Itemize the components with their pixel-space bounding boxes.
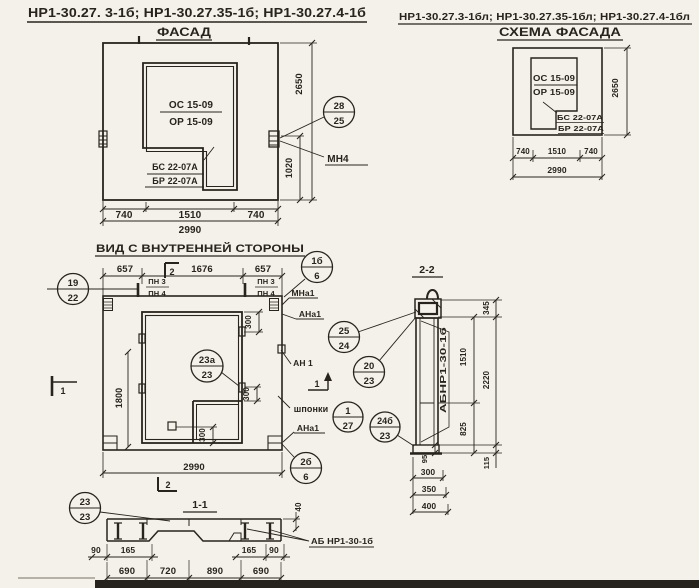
inner-dim-300-mid: 300 — [242, 387, 251, 401]
facade-dim-2990: 2990 — [179, 225, 202, 236]
series-left-title: НР1-30.27. 3-1б; НР1-30.27.35-1б; НР1-30… — [28, 6, 366, 20]
facade-block-mark-bottom: БР 22-07А — [152, 176, 198, 186]
dim-40: 40 — [294, 502, 303, 512]
series-right-title: НР1-30.27.3-1бл; НР1-30.27.35-1бл; НР1-3… — [399, 11, 690, 23]
schema-dim-740-left: 740 — [516, 147, 530, 156]
callout-1b-6-top: 1б — [311, 256, 322, 267]
inner-dim-1676: 1676 — [191, 264, 213, 275]
dim-350-base: 350 — [422, 484, 437, 494]
section-marker-1-left-label: 1 — [60, 386, 65, 396]
inner-view: ВИД С ВНУТРЕННЕЙ СТОРОНЫ 657 1676 657 2 … — [47, 242, 332, 491]
ana1-top-label: АНа1 — [299, 309, 321, 319]
lifting-loop — [427, 290, 438, 299]
plan-section-outline — [107, 519, 281, 541]
dim-400-base: 400 — [422, 501, 437, 511]
dim-345: 345 — [482, 301, 491, 315]
schema-block-mark-top: БС 22-07А — [557, 113, 604, 122]
section-marker-2-bottom-label: 2 — [165, 480, 170, 490]
facade-view: ФАСАД ОС 15-09 ОР 15-09 БС 22-07А БР 22-… — [99, 25, 368, 236]
callout-20-23-bottom: 23 — [364, 376, 375, 387]
technical-drawing: НР1-30.27. 3-1б; НР1-30.27.35-1б; НР1-30… — [0, 0, 699, 588]
top-connector-core — [419, 303, 437, 314]
schema-opening-mark-top: ОС 15-09 — [533, 74, 576, 83]
section-1-1-title: 1-1 — [192, 499, 208, 511]
inner-dim-657-right: 657 — [255, 264, 271, 275]
section-2-2: 2-2 АБНР1-30-1б 345 1510 2220 825 95 115… — [358, 264, 502, 515]
facade-dim-2650: 2650 — [294, 73, 305, 95]
inner-opening-inner-line — [146, 316, 239, 440]
callout-25-24-bottom: 24 — [339, 341, 350, 352]
inner-dim-300-bottom: 300 — [198, 428, 207, 442]
dim-690-right: 690 — [253, 566, 269, 577]
callout-20-23: 20 23 — [354, 357, 385, 388]
section-marker-1-right-label: 1 — [314, 379, 319, 389]
section-marker-1-left: 1 — [52, 376, 77, 396]
dim-90-left: 90 — [91, 545, 101, 555]
dim-720: 720 — [160, 566, 176, 577]
facade-dim-1510: 1510 — [179, 210, 202, 221]
facade-opening-mark-top: ОС 15-09 — [169, 100, 213, 111]
dim-95: 95 — [420, 455, 429, 464]
facade-opening-mark-bottom: ОР 15-09 — [169, 117, 213, 128]
section-marker-2-bottom: 2 — [158, 477, 177, 491]
callout-2b-6-bottom: 6 — [303, 472, 308, 483]
inner-dim-300-top: 300 — [244, 315, 253, 329]
an1-label: АН 1 — [293, 358, 313, 368]
facade-dim-740-left: 740 — [116, 210, 133, 221]
schema-opening-mark-bottom: ОР 15-09 — [533, 88, 576, 97]
callout-25-24-top: 25 — [339, 326, 350, 337]
schema-dim-1510: 1510 — [548, 147, 567, 156]
section-marker-2-top-label: 2 — [169, 267, 174, 277]
dim-90-right: 90 — [269, 545, 279, 555]
scan-edge-bar — [95, 580, 699, 588]
inner-annotation-labels: МНа1 АНа1 АН 1 шпонки АНа1 — [47, 279, 328, 457]
callout-23-23-top: 23 — [80, 497, 91, 508]
panel-section-bar — [416, 318, 438, 445]
dim-165-right: 165 — [242, 545, 257, 555]
inner-dim-657-left: 657 — [117, 264, 133, 275]
callout-24b-23: 24б 23 — [370, 412, 400, 442]
callout-23-23: 23 23 — [70, 493, 101, 524]
callout-24b-23-bottom: 23 — [380, 431, 391, 442]
keys-label: шпонки — [294, 404, 329, 414]
drawing-sheet: НР1-30.27. 3-1б; НР1-30.27.35-1б; НР1-30… — [0, 0, 699, 588]
inner-opening-outline — [142, 312, 242, 443]
dim-115: 115 — [482, 457, 491, 469]
sheet-header: НР1-30.27. 3-1б; НР1-30.27.35-1б; НР1-30… — [27, 6, 692, 24]
dim-690-left: 690 — [119, 566, 135, 577]
section-1-1: 1-1 АБ НР1-30-1б 40 90 165 165 90 690 72… — [88, 499, 374, 581]
section-1-1-panel-mark: АБ НР1-30-1б — [311, 536, 373, 546]
inner-pn-labels: ПН 3 ПН 4 ПН 3 ПН 4 — [138, 277, 278, 298]
pn3-label-right: ПН 3 — [257, 277, 274, 286]
schema-title: СХЕМА ФАСАДА — [499, 27, 621, 39]
callout-25-24: 25 24 — [329, 322, 360, 353]
dim-2220: 2220 — [482, 370, 491, 389]
ana1-bottom-label: АНа1 — [297, 423, 319, 433]
dim-300-base: 300 — [421, 467, 436, 477]
section-marker-1-arrow — [324, 372, 332, 381]
section-marker-1-right: 1 — [308, 372, 332, 390]
facade-dim-1020: 1020 — [284, 158, 294, 178]
schema-dim-740-right: 740 — [584, 147, 598, 156]
section-2-2-dimensions — [410, 297, 502, 515]
callout-23-23-bottom: 23 — [80, 512, 91, 523]
callout-28-25-top: 28 — [334, 101, 345, 112]
callout-24b-23-top: 24б — [377, 416, 393, 426]
callout-2b-6: 2б 6 — [291, 453, 322, 484]
callout-1b-6-bottom: 6 — [314, 271, 319, 282]
callout-19-22-top: 19 — [68, 278, 79, 289]
callout-2b-6-top: 2б — [300, 457, 311, 468]
callout-28-25-bottom: 25 — [334, 116, 345, 127]
panel-section-inner-lines — [420, 318, 434, 445]
facade-anchor-leaders — [280, 117, 324, 157]
callout-1-27-bottom: 27 — [343, 421, 354, 432]
dim-165-left: 165 — [121, 545, 136, 555]
callout-1b-6: 1б 6 — [302, 252, 333, 283]
schema-dim-2990: 2990 — [547, 165, 566, 175]
inner-title: ВИД С ВНУТРЕННЕЙ СТОРОНЫ — [96, 242, 304, 255]
callout-19-22: 19 22 — [58, 274, 89, 305]
schema-block-mark-bottom: БР 22-07А — [558, 124, 605, 133]
schema-dim-2650: 2650 — [610, 78, 620, 97]
callout-23a-23: 23а 23 — [191, 350, 223, 382]
facade-block-mark-top: БС 22-07А — [152, 162, 198, 172]
facade-anchor-label: МН4 — [327, 154, 349, 165]
callout-19-22-bottom: 22 — [68, 293, 79, 304]
callout-28-25: 28 25 — [324, 97, 355, 128]
dim-890: 890 — [207, 566, 223, 577]
facade-title: ФАСАД — [157, 25, 211, 39]
dim-1510-sec: 1510 — [459, 347, 468, 366]
pn3-label-left: ПН 3 — [148, 277, 165, 286]
inner-top-anchors — [104, 299, 279, 311]
mna1-label: МНа1 — [291, 288, 314, 298]
callout-23a-23-bottom: 23 — [202, 370, 213, 381]
callout-23a-23-top: 23а — [199, 355, 216, 366]
callout-20-23-top: 20 — [364, 361, 375, 372]
callout-1-27-top: 1 — [345, 406, 351, 417]
facade-dimension-lines — [100, 40, 317, 226]
facade-dim-740-right: 740 — [248, 210, 265, 221]
facade-schema-view: СХЕМА ФАСАДА ОС 15-09 ОР 15-09 БС 22-07А… — [497, 27, 631, 180]
inner-dim-2990: 2990 — [183, 462, 205, 473]
plan-section-details — [147, 519, 241, 541]
section-2-2-panel-mark: АБНР1-30-1б — [439, 327, 448, 413]
callout-1-27: 1 27 — [333, 402, 363, 432]
section-2-2-title: 2-2 — [419, 264, 435, 276]
scan-edge — [18, 578, 699, 588]
inner-dim-1800: 1800 — [114, 388, 124, 408]
dim-825: 825 — [459, 422, 468, 436]
